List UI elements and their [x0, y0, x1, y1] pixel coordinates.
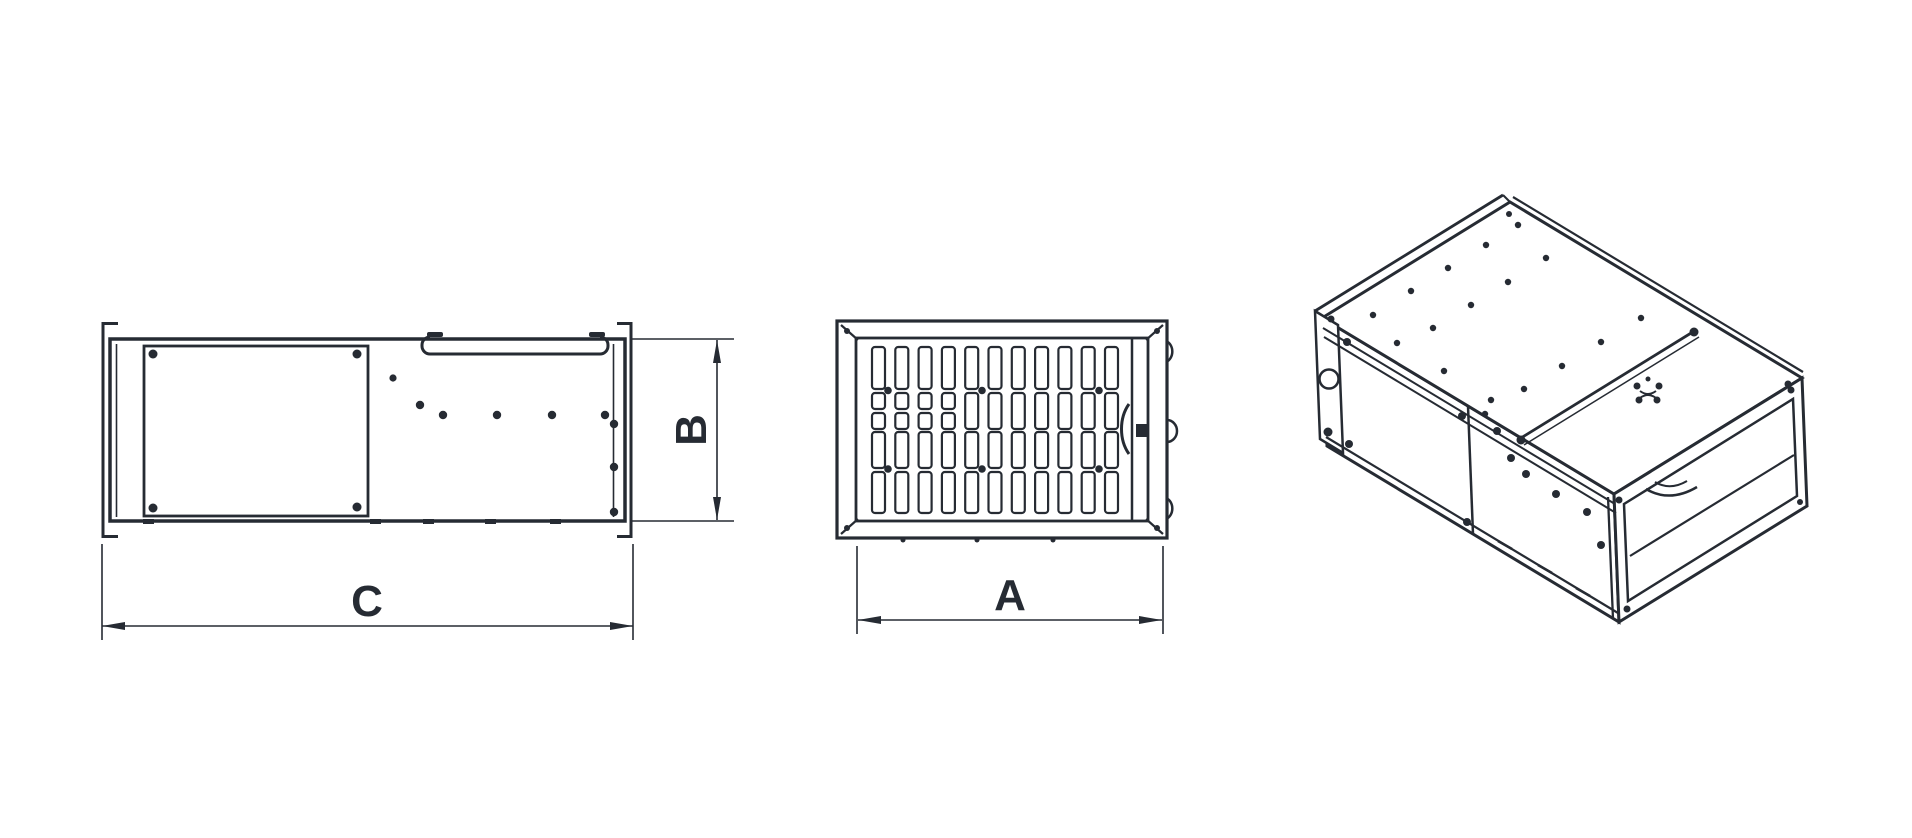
duct-fan-drawing: C B: [0, 0, 1912, 838]
dim-label-b: B: [667, 414, 716, 446]
arrowhead: [713, 340, 721, 363]
dimension-c: C: [102, 544, 633, 640]
dimension-a: A: [857, 546, 1163, 634]
technical-drawing-sheet: C B: [0, 0, 1912, 838]
front-view: [837, 321, 1177, 543]
arrowhead: [713, 497, 721, 520]
dim-label-c: C: [351, 577, 383, 626]
dim-label-a: A: [994, 571, 1026, 620]
arrowhead: [610, 622, 633, 630]
door-screw: [149, 350, 158, 359]
arrowhead: [102, 622, 125, 630]
flange-hole: [1320, 370, 1339, 389]
arrowhead: [1139, 616, 1162, 624]
door-screw: [353, 350, 362, 359]
isometric-view: [1315, 195, 1807, 622]
door-screw: [353, 503, 362, 512]
arrowhead: [858, 616, 881, 624]
dimension-b: B: [632, 339, 734, 521]
door-screw: [149, 504, 158, 513]
side-view: [103, 322, 631, 538]
door-latch: [1136, 424, 1147, 437]
